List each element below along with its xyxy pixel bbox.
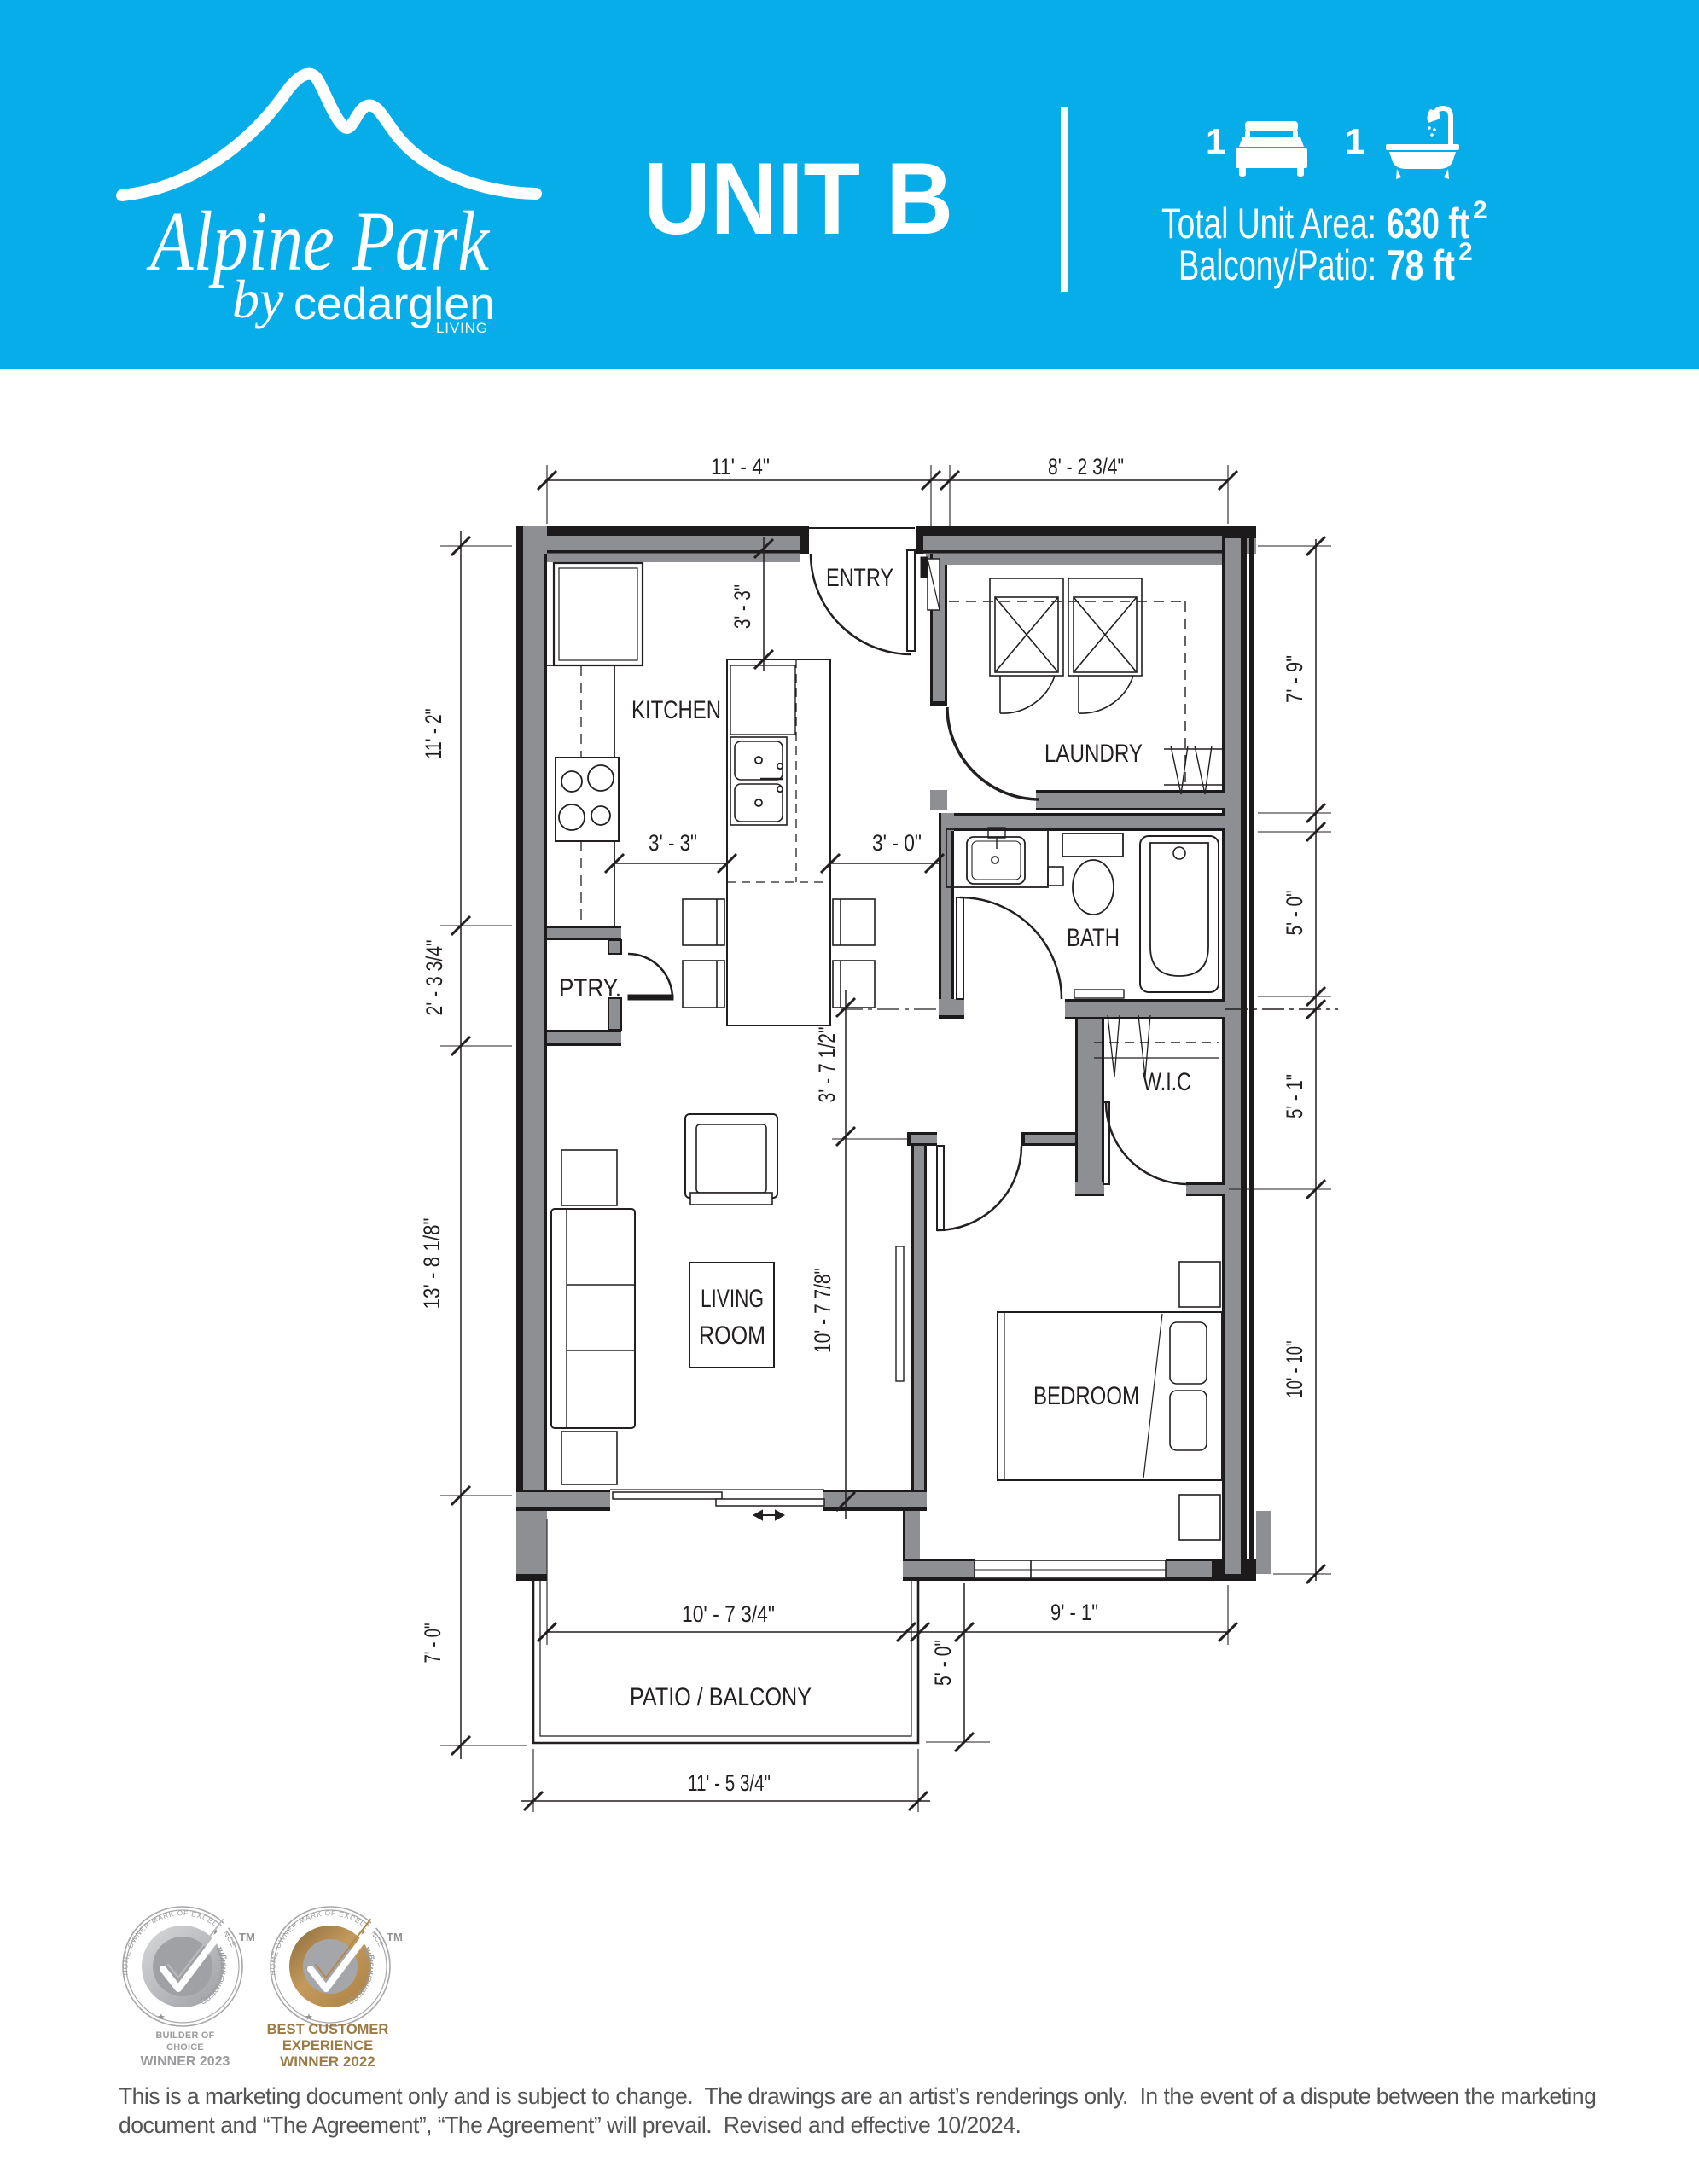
svg-text:10' - 7 3/4": 10' - 7 3/4" [682, 1601, 775, 1627]
svg-text:KITCHEN: KITCHEN [631, 696, 721, 724]
svg-text:WINNER 2022: WINNER 2022 [280, 2053, 375, 2070]
svg-text:LIVING: LIVING [701, 1285, 764, 1313]
svg-text:11' - 4": 11' - 4" [711, 454, 770, 479]
svg-text:LAUNDRY: LAUNDRY [1044, 740, 1143, 768]
svg-text:3' - 3": 3' - 3" [649, 830, 697, 856]
svg-text:5' - 1": 5' - 1" [1282, 1074, 1307, 1118]
svg-text:BUILDER OF: BUILDER OF [156, 2030, 215, 2041]
svg-text:PTRY.: PTRY. [559, 974, 621, 1002]
svg-text:7' - 0": 7' - 0" [420, 1623, 445, 1664]
svg-text:3' - 7 1/2": 3' - 7 1/2" [814, 1027, 840, 1103]
svg-text:5' - 0": 5' - 0" [930, 1640, 956, 1686]
svg-text:BATH: BATH [1067, 924, 1120, 952]
svg-text:10' - 10": 10' - 10" [1282, 1341, 1307, 1398]
svg-text:BEDROOM: BEDROOM [1033, 1382, 1139, 1410]
svg-text:ENTRY: ENTRY [826, 564, 893, 592]
svg-text:ROOM: ROOM [699, 1321, 765, 1350]
svg-text:11' - 5 3/4": 11' - 5 3/4" [688, 1770, 771, 1796]
svg-text:5' - 0": 5' - 0" [1282, 891, 1307, 936]
svg-text:11' - 2": 11' - 2" [421, 709, 446, 759]
svg-text:2' - 3 3/4": 2' - 3 3/4" [422, 940, 447, 1016]
svg-text:PATIO / BALCONY: PATIO / BALCONY [630, 1683, 812, 1711]
svg-text:BEST CUSTOMER: BEST CUSTOMER [267, 2022, 389, 2037]
svg-text:EXPERIENCE: EXPERIENCE [282, 2038, 373, 2053]
svg-text:8' - 2 3/4": 8' - 2 3/4" [1048, 454, 1124, 479]
svg-text:W.I.C: W.I.C [1143, 1068, 1191, 1096]
svg-text:CHOICE: CHOICE [166, 2042, 204, 2053]
svg-text:★: ★ [157, 2013, 166, 2023]
svg-text:7' - 9": 7' - 9" [1282, 655, 1307, 703]
svg-text:3' - 3": 3' - 3" [730, 584, 755, 629]
svg-text:13' - 8 1/8": 13' - 8 1/8" [419, 1218, 445, 1310]
svg-text:TM: TM [239, 1931, 255, 1943]
svg-text:9' - 1": 9' - 1" [1050, 1600, 1098, 1625]
svg-text:TM: TM [387, 1931, 403, 1943]
svg-text:3' - 0": 3' - 0" [872, 830, 922, 856]
svg-text:10' - 7 7/8": 10' - 7 7/8" [810, 1268, 835, 1353]
svg-text:WINNER 2023: WINNER 2023 [141, 2054, 230, 2069]
